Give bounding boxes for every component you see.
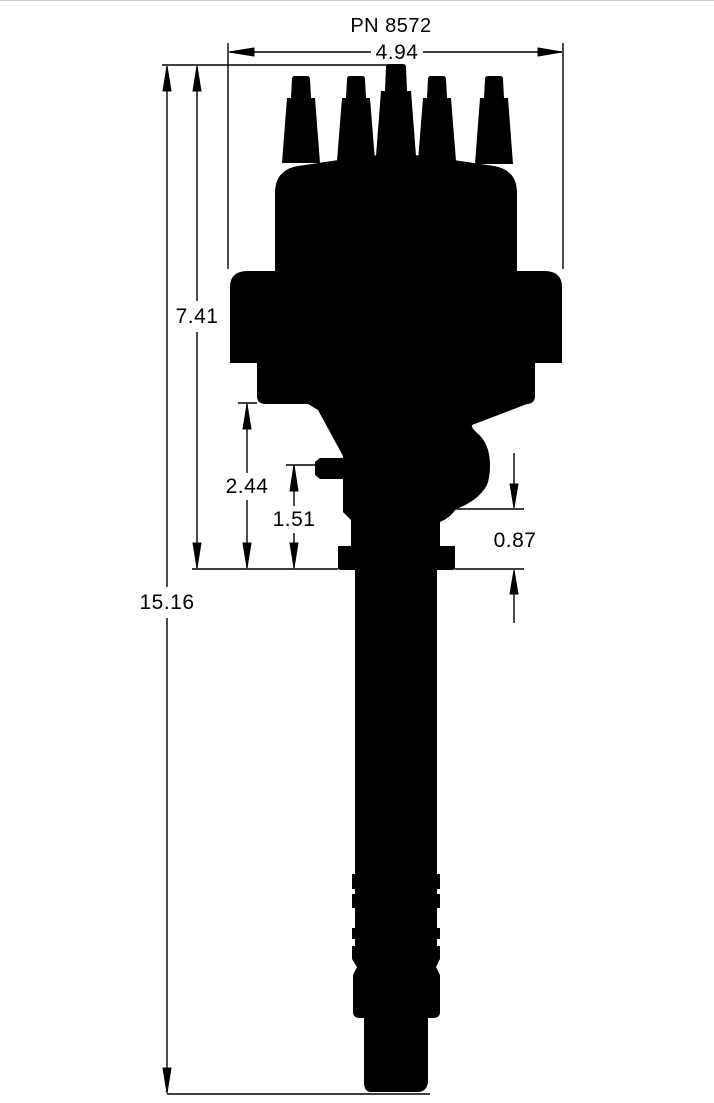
arrowhead-down (510, 484, 518, 508)
cap-tower-5 (475, 76, 513, 164)
shaft-tip (364, 1018, 428, 1092)
drive-gear (352, 959, 440, 1018)
dimension-cap-to-base: 7.41 (176, 66, 219, 568)
dimension-label-bulge-to-base: 0.87 (494, 529, 537, 552)
dimension-label-housing-to-base: 2.44 (226, 475, 269, 498)
technical-drawing-page: PN 8572 (0, 0, 714, 1103)
dimension-label-overall-height: 15.16 (139, 591, 194, 614)
arrowhead-left (229, 48, 254, 56)
dimension-label-cap-width: 4.94 (376, 41, 419, 64)
cap-tower-4 (418, 76, 456, 161)
arrowhead-down (243, 543, 251, 568)
arrowhead-right (538, 48, 562, 56)
drawing-canvas: PN 8572 (0, 1, 714, 1103)
dimension-housing-to-base: 2.44 (226, 404, 269, 568)
dimension-bulge-to-base: 0.87 (494, 453, 537, 623)
arrowhead-up (193, 66, 201, 91)
cap-tower-2 (337, 76, 375, 161)
shaft-rib (352, 946, 440, 959)
dimension-label-nipple-to-base: 1.51 (273, 508, 316, 531)
dimension-overall-height: 15.16 (139, 66, 194, 1093)
cap-band (230, 271, 562, 363)
cap-dome (275, 155, 517, 277)
cap-tower-center (376, 64, 416, 156)
part-number-title: PN 8572 (350, 15, 431, 37)
arrowhead-up (163, 66, 171, 91)
arrowhead-up (510, 570, 518, 594)
arrowhead-down (193, 543, 201, 568)
shaft-rib (352, 874, 440, 889)
shaft-rib (352, 928, 440, 939)
dimension-nipple-to-base: 1.51 (273, 465, 316, 568)
arrowhead-up (290, 465, 298, 491)
arrowhead-down (163, 1068, 171, 1093)
arrowhead-down (290, 543, 298, 568)
connector-nipple (315, 458, 343, 479)
shaft-rib (352, 894, 440, 908)
arrowhead-up (243, 404, 251, 429)
cap-base-ring (257, 362, 535, 404)
dimension-label-cap-to-base: 7.41 (176, 305, 219, 328)
cap-tower-1 (282, 76, 320, 163)
